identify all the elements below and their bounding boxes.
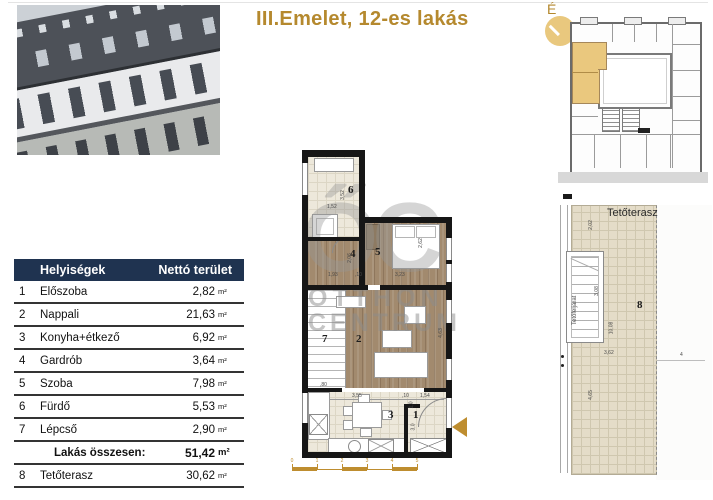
table-row: 4Gardrób3,64m² [14, 350, 244, 373]
dim-label: 3,55 [352, 393, 362, 399]
roof-access-label: Tetőfeljárat [572, 296, 578, 325]
row-number: 2 [14, 309, 32, 321]
window [446, 238, 452, 260]
courtyard [598, 53, 672, 109]
room-label-1: 1 [413, 409, 419, 421]
col-header-area: Nettó terület [158, 263, 232, 277]
table-header: HelyiségekNettó terület [14, 259, 244, 281]
area-value: 21,63 [163, 309, 215, 321]
site-plan-bay [624, 17, 642, 25]
room-label-5: 5 [375, 246, 381, 258]
site-plan-partition [672, 120, 700, 121]
room-name: Konyha+étkező [32, 332, 163, 344]
room-name: Nappali [32, 309, 163, 321]
wall [308, 388, 342, 392]
dim-label: 4,65 [588, 390, 594, 400]
scale-tick [392, 464, 393, 469]
window [446, 359, 452, 380]
row-number: 8 [14, 470, 32, 482]
chair [343, 406, 353, 416]
wall [302, 452, 452, 458]
dim-label: ,10 [355, 272, 362, 278]
scale-segment [292, 467, 317, 471]
dim-label: 2,02 [588, 220, 594, 230]
site-plan-partition [672, 44, 700, 45]
site-plan-bay [668, 17, 686, 25]
sofa [374, 352, 428, 378]
dim-label: 4,63 [438, 328, 444, 338]
dim-label: 3,52 [340, 190, 346, 200]
table-row: 3Konyha+étkező6,92m² [14, 327, 244, 350]
window [446, 264, 452, 282]
kitchen-sink-unit [309, 414, 328, 435]
area-value: 2,90 [163, 424, 215, 436]
wall [302, 150, 365, 157]
area-value: 6,92 [163, 332, 215, 344]
room-label-7: 7 [322, 333, 328, 345]
dim-label: 3,23 [395, 272, 405, 278]
table-row: 1Előszoba2,82m² [14, 281, 244, 304]
row-number: 5 [14, 378, 32, 390]
site-plan-partition [594, 134, 595, 168]
area-unit: m² [215, 425, 244, 434]
room-label-6: 6 [348, 184, 354, 196]
area-unit: m² [215, 287, 244, 296]
terrace-title: Tetőterasz [607, 207, 658, 219]
dim-label: 1,0 [408, 402, 414, 409]
scale-tick-label: 2 [338, 458, 346, 464]
table-row: 6Fürdő5,53m² [14, 396, 244, 419]
site-plan-partition [634, 24, 635, 42]
scale-tick-label: 1 [313, 458, 321, 464]
dim-label: 2,62 [418, 238, 424, 248]
site-plan-partition [612, 24, 613, 42]
elevator [638, 128, 650, 133]
window [302, 393, 308, 423]
site-plan-partition [620, 134, 621, 168]
wall [404, 404, 408, 452]
table-row: 8Tetőterasz30,62m² [14, 465, 244, 488]
total-unit: m² [215, 447, 244, 458]
wall [424, 388, 446, 392]
dim-label: 10,08 [608, 322, 614, 335]
area-value: 2,82 [163, 286, 215, 298]
scale-tick [367, 464, 368, 469]
room-name: Szoba [32, 378, 163, 390]
area-unit: m² [215, 379, 244, 388]
dim-label: ,80 [320, 382, 327, 388]
door-opening [368, 285, 380, 290]
table-row: 7Lépcső2,90m² [14, 419, 244, 442]
site-plan-partition [656, 24, 657, 42]
room-name: Gardrób [32, 355, 163, 367]
site-plan-partition [672, 70, 700, 71]
site-plan-unit-highlight [598, 42, 607, 70]
scale-tick [292, 464, 293, 469]
scale-segment [342, 467, 367, 471]
dim-label: 3,62 [604, 350, 614, 356]
scale-tick-label: 0 [288, 458, 296, 464]
vent-dot [561, 355, 564, 358]
area-unit: m² [215, 333, 244, 342]
dim-label: ,10 [402, 393, 409, 399]
dim-label: 1,93 [328, 272, 338, 278]
row-number: 4 [14, 355, 32, 367]
scale-tick [317, 464, 318, 469]
row-number: 3 [14, 332, 32, 344]
total-label: Lakás összesen: [32, 447, 163, 459]
dim-label: 3,08 [594, 286, 600, 296]
chair [360, 428, 372, 437]
building-photo [17, 5, 220, 155]
terrace-room-label: 8 [637, 299, 643, 311]
scale-tick [342, 464, 343, 469]
site-plan-bay [580, 17, 598, 25]
room-name: Lépcső [32, 424, 163, 436]
room-name: Előszoba [32, 286, 163, 298]
vent-dot [561, 364, 564, 367]
chair [343, 420, 353, 430]
flyer-page: III.Emelet, 12-es lakás É [0, 0, 713, 500]
page-title: III.Emelet, 12-es lakás [256, 8, 469, 31]
area-value: 5,53 [163, 401, 215, 413]
dimension-line [657, 360, 705, 361]
top-border-line [8, 2, 708, 3]
area-unit: m² [215, 402, 244, 411]
row-number: 6 [14, 401, 32, 413]
area-unit: m² [215, 310, 244, 319]
table-row: 2Nappali21,63m² [14, 304, 244, 327]
entrance-arrow-icon [452, 417, 467, 437]
north-label: É [547, 1, 556, 17]
table-row: 5Szoba7,98m² [14, 373, 244, 396]
room-name: Fürdő [32, 401, 163, 413]
dim-label: 4 [680, 352, 683, 358]
area-unit: m² [215, 471, 244, 480]
area-table: HelyiségekNettó terület1Előszoba2,82m²2N… [14, 259, 244, 488]
street-bar [558, 172, 708, 183]
area-value: 30,62 [163, 470, 215, 482]
stairwell [602, 108, 620, 132]
compass-needle [549, 25, 560, 36]
building-facade [17, 5, 220, 155]
dim-label: 3,0 [410, 424, 416, 431]
room-label-3: 3 [388, 409, 394, 421]
site-plan-partition [572, 134, 700, 135]
site-plan-partition [670, 134, 671, 168]
stove-icon [368, 439, 394, 453]
site-plan [570, 22, 702, 174]
scale-tick-label: 3 [363, 458, 371, 464]
window [446, 300, 452, 323]
area-value: 7,98 [163, 378, 215, 390]
area-value: 3,64 [163, 355, 215, 367]
dim-label: 1,52 [327, 204, 337, 210]
row-number: 1 [14, 286, 32, 298]
site-plan-partition [572, 72, 598, 73]
site-plan-partition [672, 96, 700, 97]
dimension-line [310, 399, 444, 400]
col-header-rooms: Helyiségek [40, 263, 105, 277]
table-total-row: Lakás összesen:51,42m² [14, 442, 244, 465]
dim-label: 2,06 [347, 253, 353, 263]
row-number: 7 [14, 424, 32, 436]
scale-tick-label: 4 [388, 458, 396, 464]
wall [308, 237, 359, 241]
area-unit: m² [215, 356, 244, 365]
site-plan-partition [572, 116, 598, 117]
dining-table [352, 402, 382, 428]
site-plan-partition [672, 24, 673, 168]
room-label-2: 2 [356, 333, 362, 345]
dim-label: 1,54 [420, 393, 430, 399]
bathtub [314, 158, 354, 172]
scale-tick [417, 464, 418, 469]
room-name: Tetőterasz [32, 470, 163, 482]
roof-grid-area [656, 205, 712, 480]
site-plan-partition [646, 134, 647, 168]
wall [359, 217, 452, 223]
scale-segment [392, 467, 417, 471]
terrace-wall-mark [563, 194, 572, 199]
scale-tick-label: 5 [413, 458, 421, 464]
window [302, 163, 308, 195]
total-value: 51,42 [163, 446, 215, 460]
site-plan-unit-highlight [572, 42, 600, 104]
